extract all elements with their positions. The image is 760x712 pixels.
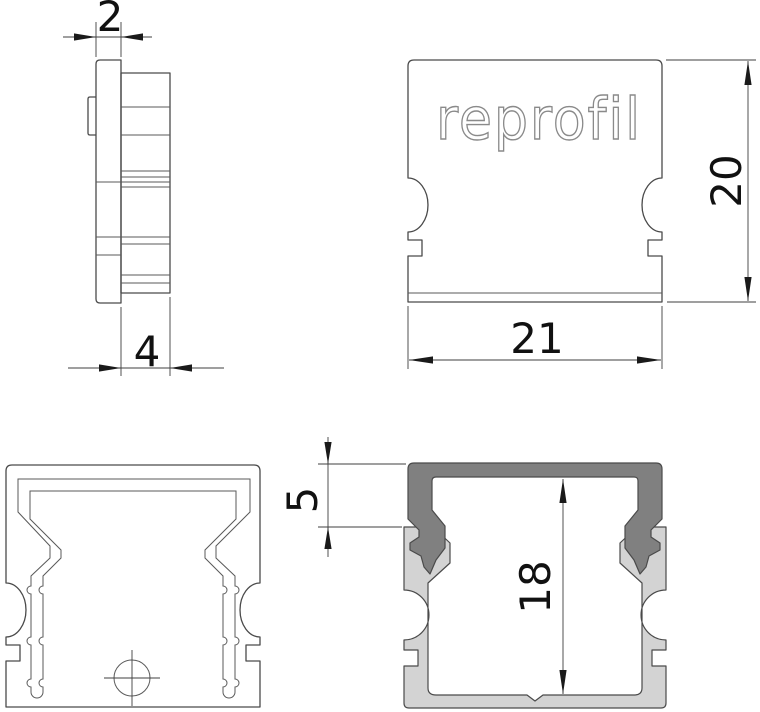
dimension-label-2: 2 xyxy=(97,0,124,41)
mounting-hole xyxy=(104,650,160,706)
dimension-arrow xyxy=(324,527,331,549)
dimension-label-20: 20 xyxy=(702,154,751,207)
side-view: 2 4 xyxy=(63,0,224,376)
dimension-cap-total-depth: 4 xyxy=(68,297,224,376)
dimension-arrow xyxy=(121,33,143,40)
side-view-rib-lines xyxy=(96,107,170,283)
dimension-collar-depth: 5 xyxy=(278,437,406,557)
dimension-cap-height: 20 xyxy=(666,60,756,302)
dimension-inner-height: 18 xyxy=(511,479,567,694)
section-profile-body xyxy=(404,527,666,708)
dimension-cap-width: 21 xyxy=(408,306,662,369)
dimension-cap-face-thickness: 2 xyxy=(63,0,152,57)
dimension-label-18: 18 xyxy=(511,560,560,613)
back-view-inner-contour xyxy=(18,479,250,698)
back-view-silhouette xyxy=(6,465,260,707)
front-view: reprofil 20 21 xyxy=(408,60,756,369)
back-view xyxy=(6,465,260,707)
dimension-label-4: 4 xyxy=(134,327,161,376)
end-cap-technical-drawing: 2 4 reprofil 20 xyxy=(0,0,760,712)
side-view-tab xyxy=(88,97,96,135)
dimension-label-5: 5 xyxy=(278,487,327,514)
dimension-arrow xyxy=(744,277,751,301)
dimension-arrow xyxy=(324,442,331,464)
side-view-plug-body xyxy=(121,73,170,293)
dimension-arrow xyxy=(559,670,566,694)
logo-text: reprofil xyxy=(436,85,642,153)
dimension-arrow xyxy=(637,356,661,363)
dimension-arrow xyxy=(744,61,751,85)
dimension-arrow xyxy=(170,364,192,371)
dimension-label-21: 21 xyxy=(510,314,563,363)
dimension-arrow xyxy=(99,364,121,371)
dimension-arrow xyxy=(409,356,433,363)
section-view: 5 18 xyxy=(278,437,666,708)
dimension-arrow xyxy=(74,33,96,40)
dimension-arrow xyxy=(559,479,566,503)
technical-drawing-page: 2 4 reprofil 20 xyxy=(0,0,760,712)
